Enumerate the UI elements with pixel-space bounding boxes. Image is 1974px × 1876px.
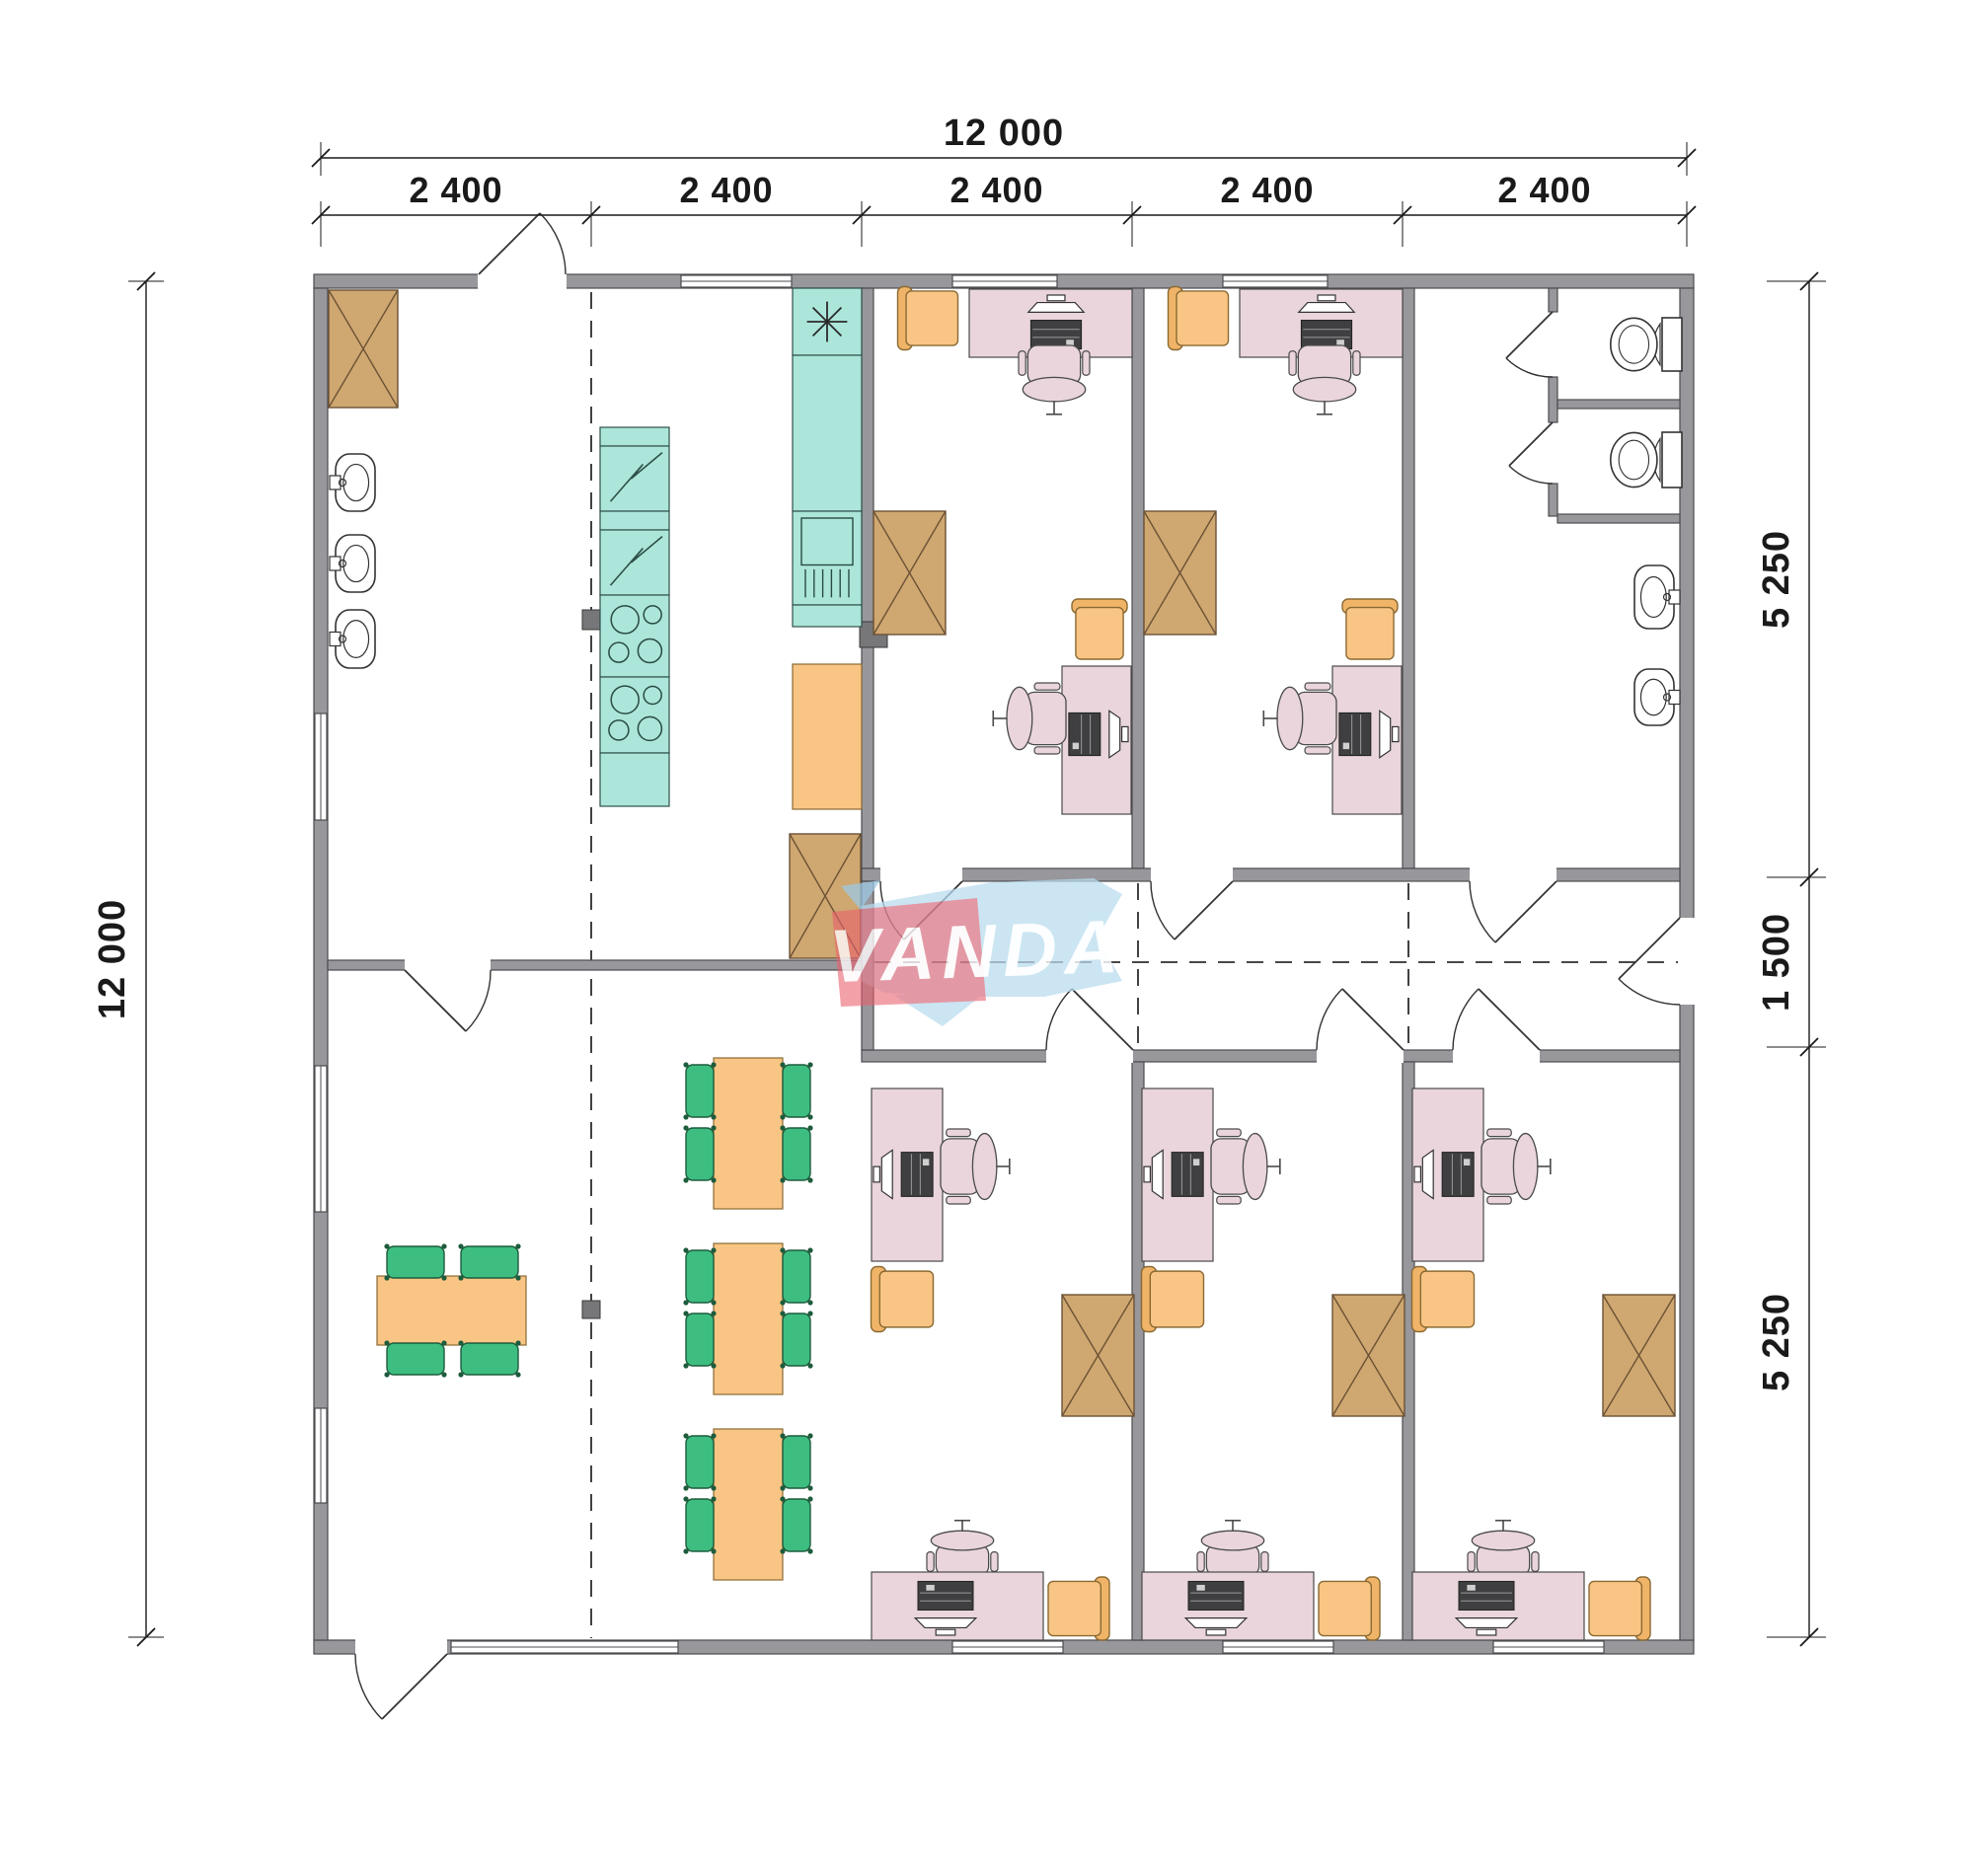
office5-office-chair-1: [1481, 1129, 1551, 1204]
kitchen-sink-star-icon: [807, 302, 848, 342]
wardrobe-crossbox: [329, 290, 398, 408]
opening-entrance: [478, 273, 567, 289]
opening-dining-exit: [355, 1639, 447, 1655]
dim-top-seg-label-5: 2 400: [1497, 170, 1591, 210]
office2-cabinet-crossbox: [1144, 511, 1216, 635]
office4-guest-chair-1: [1142, 1267, 1204, 1332]
kitchen-island-mid: [600, 511, 669, 530]
dim-right-label-3: 5 250: [1756, 1293, 1797, 1391]
hall-sink-2: [330, 535, 375, 592]
opening-office4: [1317, 1049, 1404, 1063]
door-corridor-east: [1619, 918, 1680, 1005]
dining-table-1: [377, 1276, 526, 1345]
dim-top-seg-label-3: 2 400: [949, 170, 1043, 210]
dining-chair-1a: [384, 1243, 446, 1280]
dining-table-2: [714, 1058, 783, 1209]
dining-chair-2d: [780, 1125, 812, 1182]
dining-chair-4b: [683, 1496, 716, 1553]
office3-cabinet-crossbox: [1062, 1295, 1134, 1416]
dining-chair-3a: [683, 1247, 716, 1305]
office1-computer-2: [1069, 711, 1128, 758]
window-left-dining-2: [315, 1408, 327, 1503]
door-office2: [1151, 881, 1233, 939]
office1-computer-1: [1028, 295, 1084, 349]
dining-chair-1c: [384, 1340, 446, 1377]
office3-guest-chair-1: [872, 1267, 934, 1332]
office4-computer-2: [1185, 1581, 1247, 1635]
office5-computer-1: [1414, 1150, 1474, 1198]
window-top-office2: [1223, 275, 1328, 287]
svg-text:2 400: 2 400: [949, 170, 1043, 210]
door-dining-exit: [355, 1654, 447, 1719]
dining-chair-4c: [780, 1433, 812, 1490]
window-left-dining-1: [315, 1066, 327, 1212]
kitchen-worktable: [793, 664, 862, 809]
door-wc-stall-2: [1509, 422, 1553, 484]
dim-top-seg-label-4: 2 400: [1220, 170, 1314, 210]
office4-computer-1: [1144, 1150, 1203, 1198]
opening-corridor-east: [1679, 918, 1695, 1005]
wall-corridor-bottom: [862, 1050, 1680, 1062]
kitchen-counter-mid: [793, 355, 862, 511]
office2-computer-1: [1299, 295, 1354, 349]
office3-office-chair-1: [941, 1129, 1010, 1204]
opening-washroom: [1470, 867, 1556, 882]
wall-kitchen-office1: [862, 288, 873, 868]
svg-text:5 250: 5 250: [1756, 530, 1797, 629]
office1-guest-chair-2: [1072, 599, 1127, 659]
dining-table-4: [714, 1429, 783, 1580]
window-top-kitchen: [681, 275, 792, 287]
door-wc-stall-1: [1506, 312, 1553, 377]
door-office5: [1453, 989, 1540, 1050]
office2-office-chair-2: [1263, 683, 1336, 754]
office4-cabinet-crossbox: [1332, 1295, 1405, 1416]
office1-guest-chair-1: [898, 287, 958, 350]
dining-chair-1b: [458, 1243, 520, 1280]
kitchen-island-bottom: [600, 753, 669, 806]
office5-guest-chair-1: [1412, 1267, 1475, 1332]
wall-stall-stub-3: [1549, 484, 1557, 516]
dining-table-3: [714, 1243, 783, 1394]
kitchen-dishwasher: [793, 511, 862, 605]
office5-guest-chair-2: [1589, 1577, 1650, 1640]
wall-stall-stub-1: [1549, 288, 1557, 312]
wall-office2-washroom: [1403, 288, 1414, 868]
svg-text:2 400: 2 400: [1220, 170, 1314, 210]
column-dining: [582, 1301, 600, 1318]
office4-office-chair-1: [1211, 1129, 1280, 1204]
office1-office-chair-2: [993, 683, 1066, 754]
office3-office-chair-2: [927, 1521, 998, 1576]
office5-cabinet-crossbox: [1603, 1295, 1675, 1416]
washroom-sink-1: [1634, 565, 1680, 629]
opening-office2: [1151, 867, 1233, 882]
door-office3: [1046, 989, 1133, 1050]
svg-text:2 400: 2 400: [679, 170, 773, 210]
dining-chair-2c: [780, 1062, 812, 1119]
opening-office3: [1046, 1049, 1133, 1063]
dim-top-seg-label-1: 2 400: [409, 170, 502, 210]
dining-chair-2a: [683, 1062, 716, 1119]
column-kitchen: [582, 610, 600, 630]
wc-toilet-2: [1611, 432, 1682, 488]
office2-guest-chair-1: [1169, 287, 1229, 350]
window-top-office1: [952, 275, 1057, 287]
window-bottom-dining: [451, 1641, 678, 1653]
office1-office-chair-1: [1019, 345, 1090, 414]
office2-computer-2: [1339, 711, 1399, 758]
office1-cabinet-crossbox: [873, 511, 946, 635]
dim-left-label: 12 000: [92, 899, 133, 1019]
office2-office-chair-1: [1289, 345, 1360, 414]
washroom-sink-2: [1634, 669, 1680, 725]
wc-toilet-1: [1611, 318, 1682, 371]
dining-chair-4a: [683, 1433, 716, 1490]
svg-text:12 000: 12 000: [944, 113, 1064, 154]
dim-top-total-label: 12 000: [944, 113, 1064, 154]
svg-text:2 400: 2 400: [409, 170, 502, 210]
office4-guest-chair-2: [1319, 1577, 1380, 1640]
hall-sink-1: [330, 454, 375, 511]
wall-stall-divider: [1557, 400, 1680, 409]
office2-guest-chair-2: [1342, 599, 1398, 659]
door-entrance: [479, 213, 566, 274]
office3-guest-chair-2: [1048, 1577, 1109, 1640]
office5-office-chair-2: [1468, 1521, 1539, 1576]
window-left-kitchen: [315, 713, 327, 820]
office5-computer-2: [1456, 1581, 1517, 1635]
window-bottom-office4: [1223, 1641, 1333, 1653]
dining-chair-3b: [683, 1311, 716, 1368]
dining-chair-2b: [683, 1125, 716, 1182]
dim-right-label-1: 5 250: [1756, 530, 1797, 629]
dining-chair-1d: [458, 1340, 520, 1377]
office3-computer-2: [915, 1581, 976, 1635]
door-office4: [1317, 989, 1404, 1050]
dim-right-label-2: 1 500: [1756, 913, 1797, 1012]
dining-chair-3c: [780, 1247, 812, 1305]
door-hall-dining: [405, 970, 491, 1031]
kitchen-counter-end: [793, 605, 862, 627]
hall-sink-3: [330, 610, 375, 668]
wall-corridor-top: [862, 868, 1680, 881]
dining-chair-4d: [780, 1496, 812, 1553]
vanda-text: VANDA: [828, 905, 1126, 999]
dim-top-seg-label-2: 2 400: [679, 170, 773, 210]
door-washroom: [1470, 881, 1556, 942]
kitchen-island-top: [600, 427, 669, 446]
window-bottom-office5: [1493, 1641, 1604, 1653]
opening-office1: [880, 867, 962, 882]
floor-plan-page: 12 0002 4002 4002 4002 4002 40012 0005 2…: [0, 0, 1974, 1876]
dining-chair-3d: [780, 1311, 812, 1368]
wall-office1-office2: [1132, 288, 1144, 868]
window-bottom-office3: [952, 1641, 1063, 1653]
opening-office5: [1453, 1049, 1540, 1063]
svg-text:2 400: 2 400: [1497, 170, 1591, 210]
office4-office-chair-2: [1197, 1521, 1268, 1576]
opening-hall-dining: [405, 959, 491, 971]
svg-text:1 500: 1 500: [1756, 913, 1797, 1012]
floor-plan-canvas: 12 0002 4002 4002 4002 4002 40012 0005 2…: [0, 0, 1974, 1876]
office3-computer-1: [873, 1150, 933, 1198]
svg-text:12 000: 12 000: [92, 899, 133, 1019]
kitchen-stove-1: [600, 595, 669, 677]
svg-text:5 250: 5 250: [1756, 1293, 1797, 1391]
wall-stall-bottom: [1557, 514, 1680, 523]
wall-stall-stub-2: [1549, 377, 1557, 422]
